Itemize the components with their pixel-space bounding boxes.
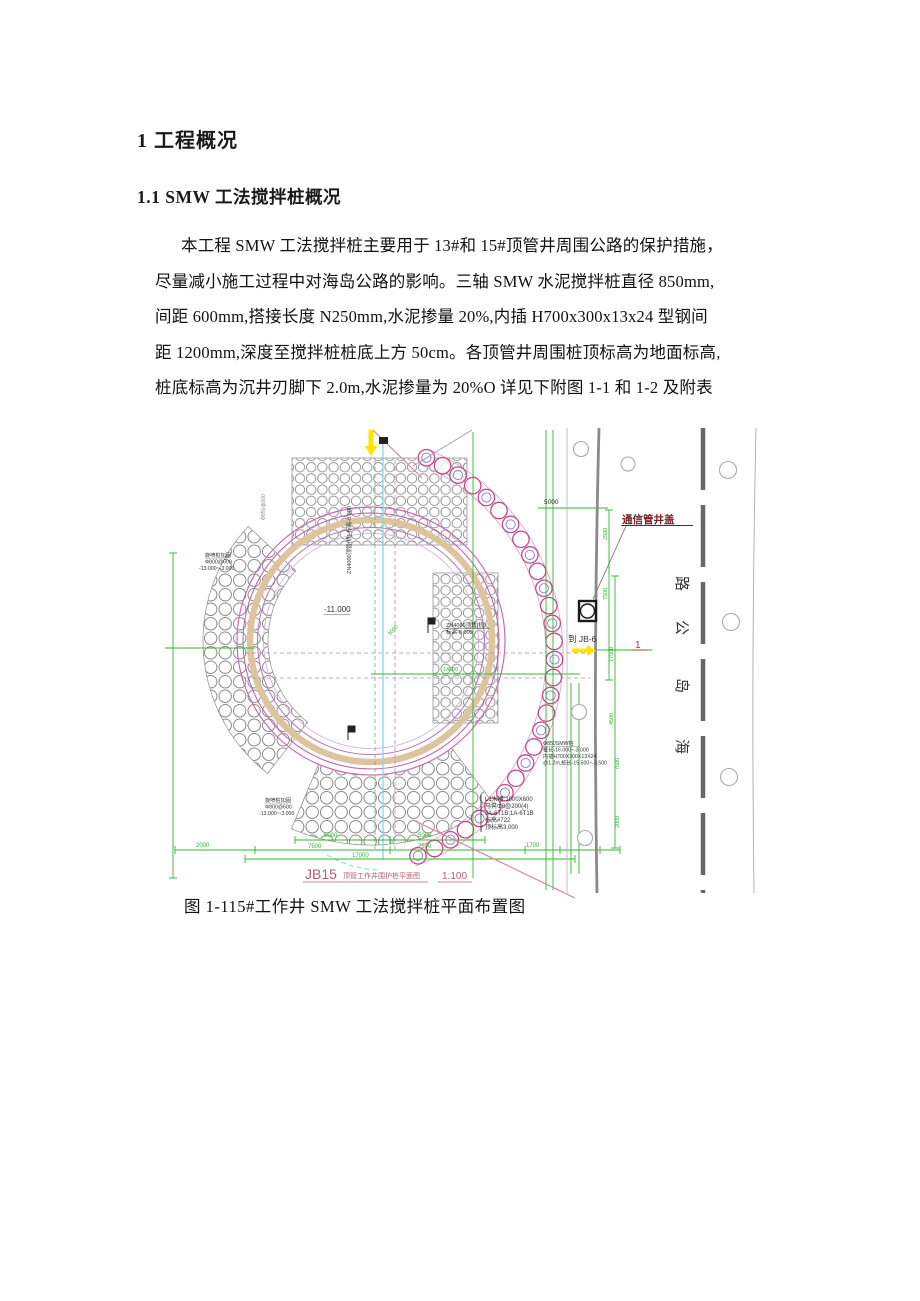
detail-note: L1米槽:1000X600 马凳Φ8@200(4) JA-6T1B;1A-6T1…	[481, 795, 534, 832]
body-paragraph: 本工程 SMW 工法搅拌桩主要用于 13#和 15#顶管井周围公路的保护措施， …	[137, 228, 797, 406]
comm-manhole-symbol	[579, 601, 596, 621]
note-line: -13.000~-3.000	[259, 811, 294, 817]
smw-pile-note: Φ850SMW桩 桩长-16.000~-3.000 内插H700X300X13X…	[543, 739, 607, 767]
paragraph-line: 尽量减小施工过程中对海岛公路的影响。三轴 SMW 水泥搅拌桩直径 850mm,	[155, 264, 797, 300]
note-line: -13.000~-3.000	[199, 566, 234, 572]
paragraph-line: 本工程 SMW 工法搅拌桩主要用于 13#和 15#顶管井周围公路的保护措施，	[181, 228, 797, 264]
section-number: 1	[635, 640, 641, 651]
drawing-title-scale: 1:100	[442, 871, 467, 882]
note-line: L1米槽:1000X600	[485, 795, 533, 803]
note-line: 旋喷桩加固	[265, 796, 291, 804]
dim-label: 17000	[352, 853, 369, 859]
road-char: 岛	[673, 678, 690, 693]
dim-label: 7500	[418, 844, 432, 850]
note-line: JA-6T1B;1A-6T1B	[485, 811, 534, 817]
dim-label: 4500	[609, 713, 615, 725]
dim-label: 2500	[603, 528, 609, 540]
note-line: @1.2m,桩长-15.500~-3.500	[543, 759, 607, 767]
figure-caption: 图 1-115#工作井 SMW 工法搅拌桩平面布置图	[184, 893, 526, 917]
road-char: 海	[673, 739, 690, 754]
note-line: 马凳Φ8@200(4)	[485, 802, 529, 810]
subsection-heading: 1.1 SMW 工法搅拌桩概况	[137, 184, 341, 209]
section-mark: 1	[631, 640, 647, 651]
section-heading: 1 工程概况	[137, 124, 238, 153]
center-level-label: -11.000	[324, 605, 351, 614]
note-line: 桩长-16.000~-3.000	[543, 746, 589, 754]
comm-manhole-label: 通信管井盖	[622, 513, 675, 526]
dim-label: 17500	[609, 647, 615, 662]
note-line: 旋喷桩加固	[205, 551, 231, 559]
dim-label: 7500	[308, 844, 322, 850]
road-lines	[567, 428, 756, 893]
note-line: Φ850SMW桩	[543, 739, 574, 747]
dim-label: 2000	[615, 816, 621, 828]
north-arrow	[369, 430, 374, 446]
document-page: 1 工程概况 1.1 SMW 工法搅拌桩概况 本工程 SMW 工法搅拌桩主要用于…	[0, 0, 920, 1301]
grid-spec-label: Φ850@600	[261, 494, 267, 520]
drawing-title-prefix: JB15	[305, 866, 337, 882]
dim-label: 5000	[324, 833, 338, 839]
right-pile-grid	[433, 573, 498, 723]
dim-label: 7500	[615, 758, 621, 770]
top-marker	[379, 437, 388, 444]
dim-label: 5000	[544, 499, 559, 506]
drawing-title-name: 顶管工作井围护桩平面图	[343, 871, 420, 880]
dim-label: 2000	[196, 843, 210, 849]
jb6-arrow	[572, 645, 596, 656]
note-line: 内插H700X300X13X24	[543, 752, 596, 760]
to-jb6-label: 到 JB-6	[568, 634, 597, 644]
angle-dim-label: 3000	[387, 624, 400, 637]
zn4000-level: 标高-8.000	[446, 628, 473, 636]
paragraph-line: 桩底标高为沉井刃脚下 2.0m,水泥掺量为 20%O 详见下附图 1-1 和 1…	[155, 370, 797, 406]
dim-label: 14000	[443, 667, 458, 673]
road-name-vertical: 路 公 岛 海	[673, 576, 690, 754]
note-line: 顶标高3.000	[485, 823, 519, 831]
road-char: 路	[673, 576, 690, 591]
dim-label: 7500	[603, 588, 609, 600]
road-char: 公	[673, 620, 690, 635]
zn4000-vertical-label: ZN4000顶管(机) 标高-8.000	[345, 506, 353, 574]
note-line: 标高#722	[485, 816, 511, 824]
cad-plan-drawing: 1 通信管井盖 到 JB-6 -11.000 ZN4000顶管(机) 标高-8.…	[160, 428, 790, 898]
dim-label: 5000	[418, 833, 432, 839]
paragraph-line: 间距 600mm,搭接长度 N250mm,水泥掺量 20%,内插 H700x30…	[155, 299, 797, 335]
dim-label: 1700	[526, 843, 540, 849]
zn4000-label: ZN4000顶管(机)	[446, 621, 486, 629]
note-line: Φ800@600	[205, 560, 232, 566]
note-line: Φ800@600	[265, 805, 292, 811]
drawing-title: JB15 顶管工作井围护桩平面图 1:100	[303, 866, 472, 882]
paragraph-line: 距 1200mm,深度至搅拌桩桩底上方 50cm。各顶管井周围桩顶标高为地面标高…	[155, 335, 797, 371]
jet-grout-note-lower: 旋喷桩加固 Φ800@600 -13.000~-3.000	[259, 796, 294, 817]
jet-grout-note-upper: 旋喷桩加固 Φ800@600 -13.000~-3.000	[199, 551, 234, 572]
